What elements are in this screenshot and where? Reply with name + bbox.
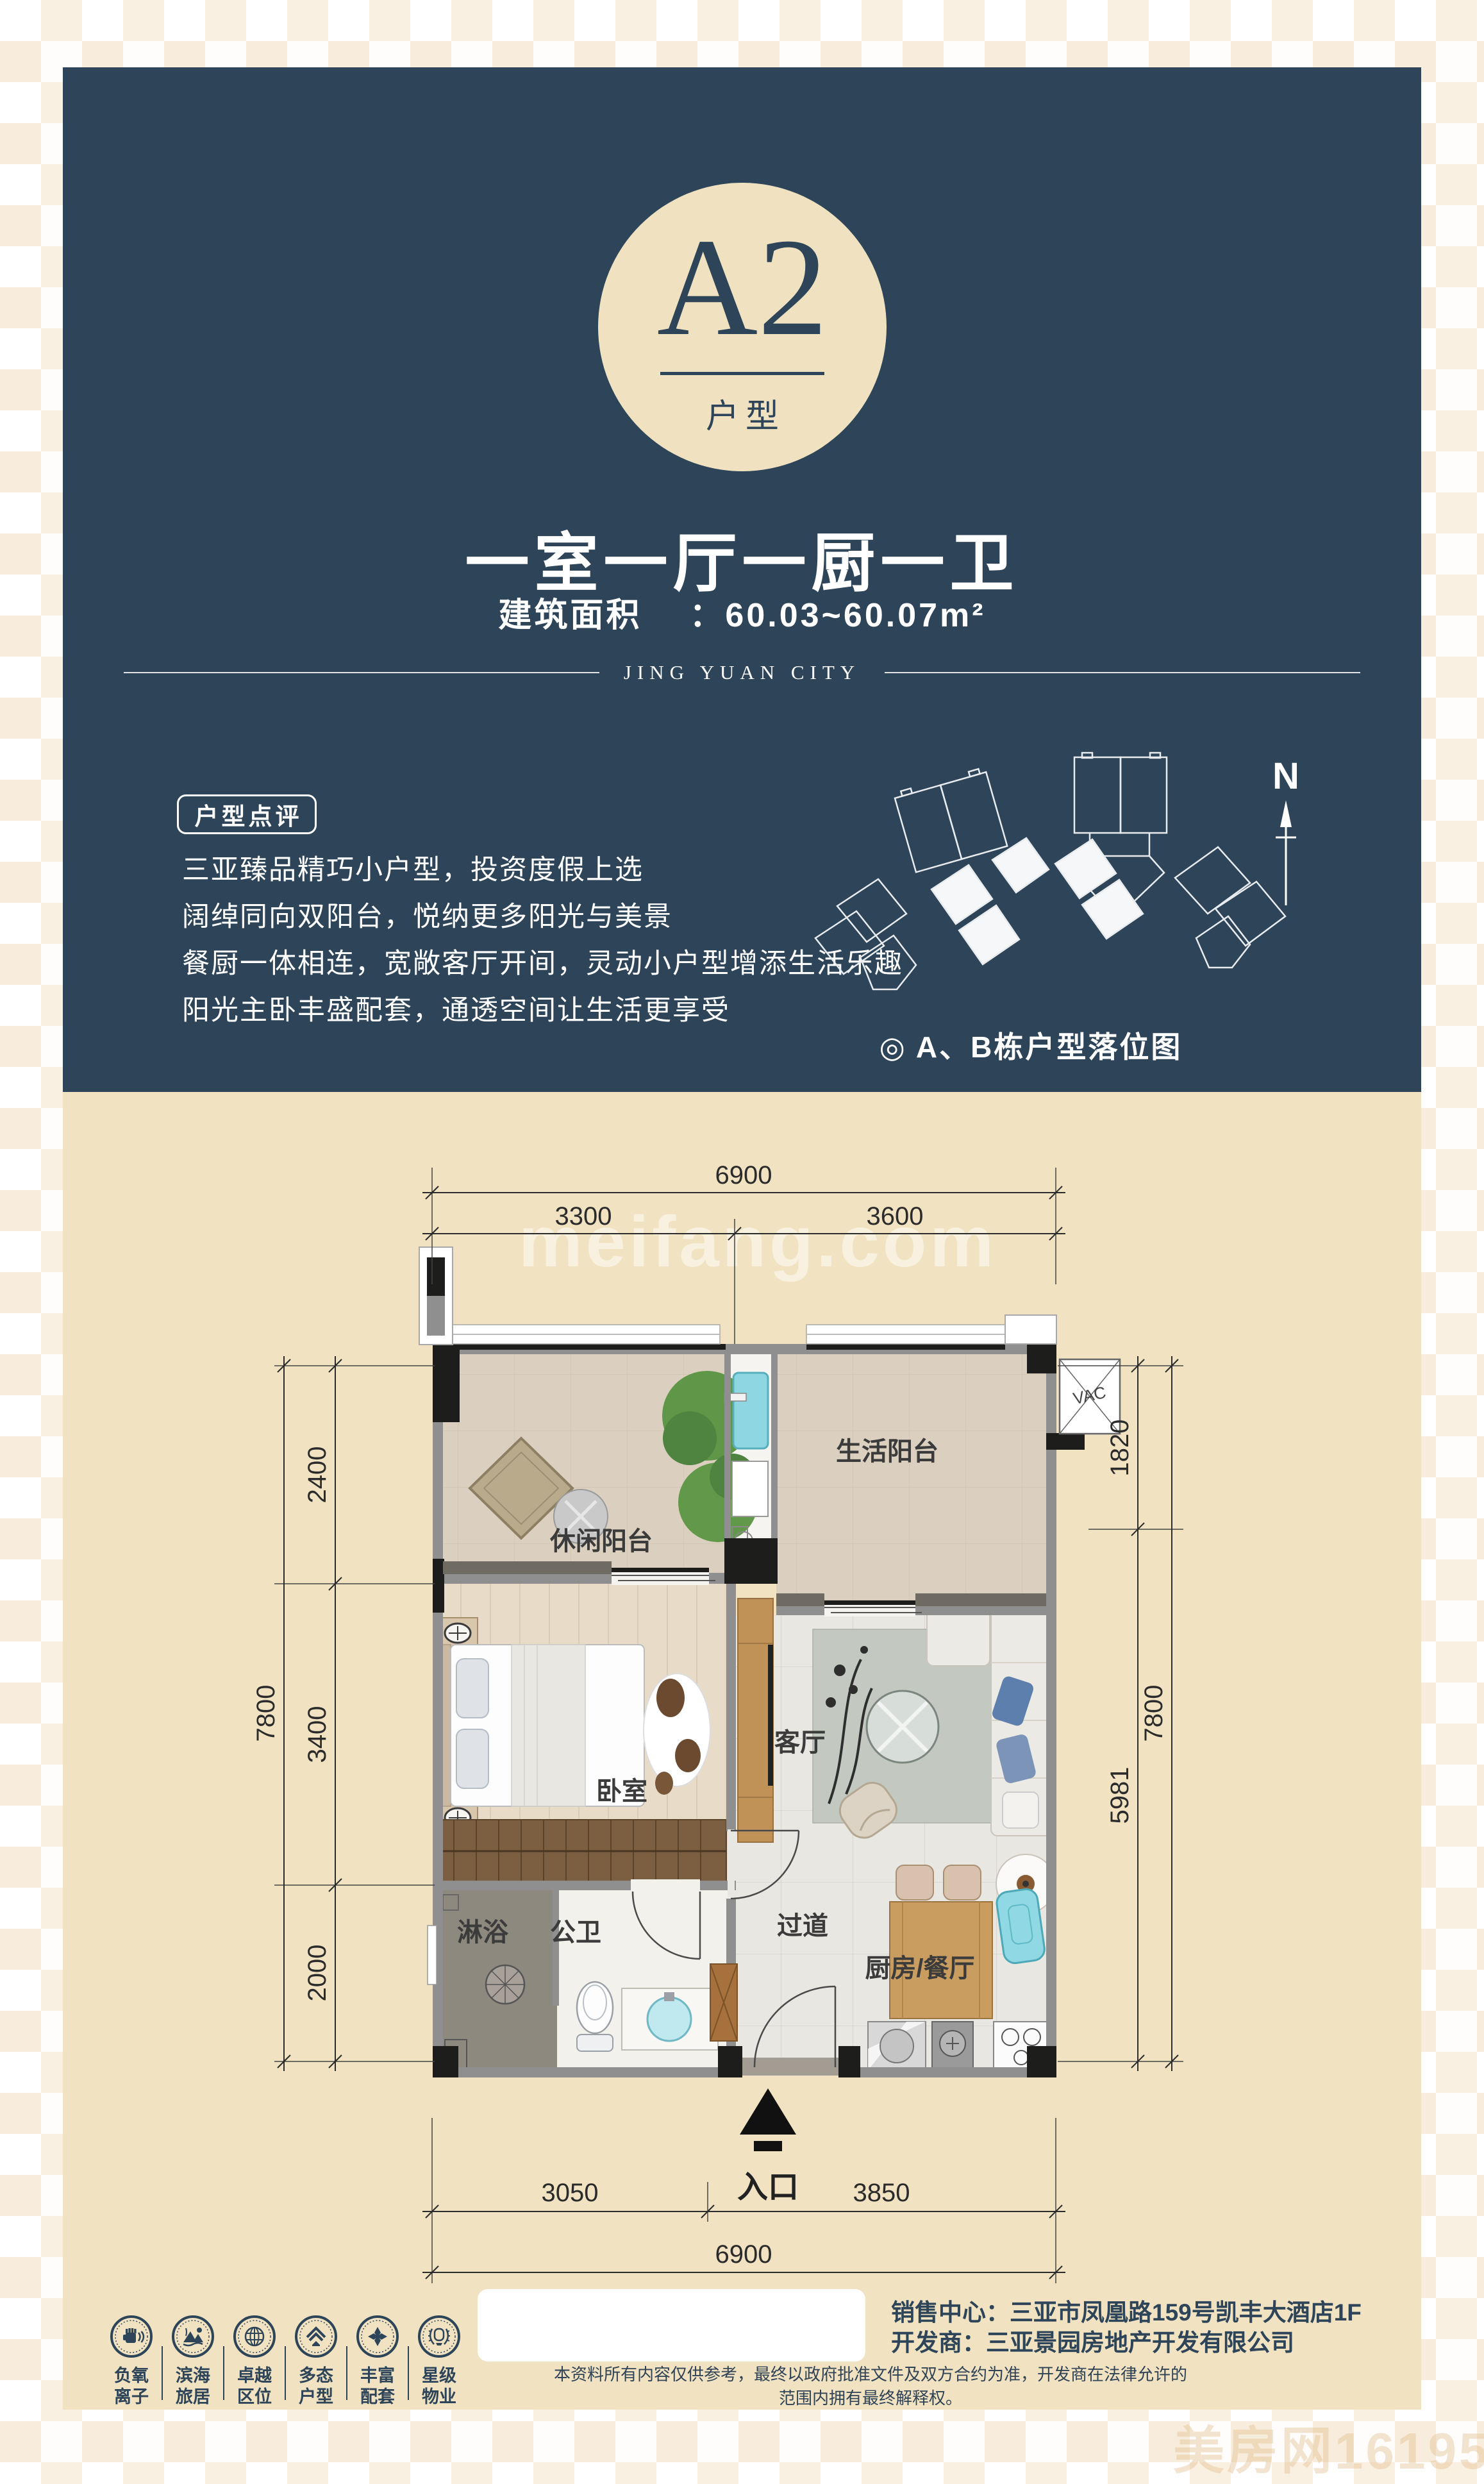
area-row: 建筑面积：60.03~60.07m² bbox=[63, 588, 1421, 636]
dim-left-seg3: 2000 bbox=[303, 1945, 331, 2002]
dim-top-total: 6900 bbox=[715, 1161, 772, 1189]
compass: N bbox=[1267, 755, 1305, 910]
room-label-leisure-balcony: 休闲阳台 bbox=[549, 1527, 653, 1556]
unit-code: A2 bbox=[657, 201, 828, 376]
badge-label: 负氧离子 bbox=[114, 2365, 149, 2408]
room-label-corridor: 过道 bbox=[777, 1912, 828, 1940]
dim-top-left: 3300 bbox=[555, 1202, 612, 1230]
comment-line: 三亚臻品精巧小户型，投资度假上选 bbox=[182, 847, 903, 894]
entrance-label: 入口 bbox=[737, 2170, 799, 2204]
dim-left-seg1: 2400 bbox=[303, 1447, 331, 1504]
dim-top-right: 3600 bbox=[867, 1202, 924, 1230]
brand-name: JING YUAN CITY bbox=[624, 661, 860, 684]
room-label-kitchen: 厨房/餐厅 bbox=[865, 1954, 974, 1983]
comment-list: 三亚臻品精巧小户型，投资度假上选 阔绰同向双阳台，悦纳更多阳光与美景 餐厨一体相… bbox=[182, 847, 903, 1034]
logo-placeholder bbox=[478, 2289, 865, 2362]
globe-icon bbox=[232, 2314, 277, 2359]
house-icon bbox=[294, 2314, 338, 2359]
disclaimer-text: 本资料所有内容仅供参考，最终以政府批准文件及双方合约为准，开发商在法律允许的范围… bbox=[550, 2362, 1191, 2409]
corner-watermark: 美房网161955035 bbox=[1173, 2410, 1484, 2484]
unit-code-label: 户型 bbox=[699, 389, 785, 437]
room-label-bath: 公卫 bbox=[550, 1918, 601, 1947]
badge-label: 卓越区位 bbox=[237, 2365, 272, 2408]
area-value: ：60.03~60.07m² bbox=[689, 588, 985, 636]
comment-box-label: 户型点评 bbox=[177, 794, 317, 834]
badge-divider bbox=[660, 372, 824, 375]
contact-info: 销售中心：三亚市凤凰路159号凯丰大酒店1F 开发商：三亚景园房地产开发有限公司 bbox=[891, 2297, 1362, 2358]
room-label-life-balcony: 生活阳台 bbox=[836, 1438, 938, 1466]
siteplan-diagram bbox=[800, 746, 1313, 1018]
badge-location: 卓越区位 bbox=[224, 2314, 285, 2408]
compass-arrow-icon bbox=[1274, 798, 1297, 910]
badge-coast: 滨海旅居 bbox=[163, 2314, 223, 2408]
area-label: 建筑面积 bbox=[498, 588, 642, 636]
coast-mountain-icon bbox=[171, 2314, 215, 2359]
room-label-bedroom: 卧室 bbox=[596, 1777, 647, 1806]
dim-right-total: 7800 bbox=[1140, 1685, 1168, 1742]
comment-line: 餐厨一体相连，宽敞客厅开间，灵动小户型增添生活乐趣 bbox=[182, 941, 903, 987]
badge-amenities: 丰富配套 bbox=[347, 2314, 408, 2408]
sales-center-line: 销售中心：三亚市凤凰路159号凯丰大酒店1F bbox=[891, 2297, 1362, 2328]
header-panel: A2 户型 一室一厅一厨一卫 建筑面积：60.03~60.07m² JING Y… bbox=[63, 67, 1421, 1092]
badge-oxygen: 负氧离子 bbox=[101, 2314, 162, 2408]
unit-badge: A2 户型 bbox=[598, 183, 887, 471]
developer-line: 开发商：三亚景园房地产开发有限公司 bbox=[891, 2328, 1362, 2358]
ornament-icon bbox=[355, 2314, 400, 2359]
dim-right-seg2: 5981 bbox=[1106, 1767, 1134, 1824]
floorplan-drawing: meifang.com bbox=[63, 1092, 1421, 2410]
dim-right-seg1: 1820 bbox=[1106, 1420, 1134, 1477]
entrance-marker: 入口 bbox=[737, 2088, 799, 2204]
fist-icon bbox=[109, 2314, 154, 2359]
dim-bottom-right: 3850 bbox=[853, 2179, 910, 2207]
feature-badges: 负氧离子 滨海旅居 bbox=[101, 2314, 469, 2408]
compass-n-label: N bbox=[1272, 755, 1299, 798]
dim-left-seg2: 3400 bbox=[303, 1706, 331, 1763]
badge-label: 星级物业 bbox=[422, 2365, 456, 2408]
badge-layouts: 多态户型 bbox=[286, 2314, 346, 2408]
brand-rule-right bbox=[885, 672, 1360, 673]
dim-bottom-total: 6900 bbox=[715, 2240, 772, 2269]
siteplan-caption: ◎ A、B栋户型落位图 bbox=[832, 1024, 1230, 1066]
room-label-living: 客厅 bbox=[774, 1729, 826, 1757]
badge-label: 多态户型 bbox=[299, 2365, 333, 2408]
laurel-icon bbox=[417, 2314, 462, 2359]
room-label-shower: 淋浴 bbox=[457, 1918, 509, 1947]
brand-rule-left bbox=[124, 672, 599, 673]
badge-label: 滨海旅居 bbox=[176, 2365, 210, 2408]
dim-left-total: 7800 bbox=[252, 1685, 280, 1742]
badge-property: 星级物业 bbox=[409, 2314, 469, 2408]
dim-bottom-left: 3050 bbox=[542, 2179, 599, 2207]
brand-row: JING YUAN CITY bbox=[124, 661, 1360, 684]
poster-page: { "header": { "unit_code": "A2", "unit_c… bbox=[0, 0, 1484, 2469]
floorplan-sheet: meifang.com bbox=[63, 1092, 1421, 2410]
poster: A2 户型 一室一厅一厨一卫 建筑面积：60.03~60.07m² JING Y… bbox=[63, 67, 1421, 2410]
comment-line: 阔绰同向双阳台，悦纳更多阳光与美景 bbox=[182, 894, 903, 941]
comment-line: 阳光主卧丰盛配套，通透空间让生活更享受 bbox=[182, 987, 903, 1034]
badge-label: 丰富配套 bbox=[360, 2365, 395, 2408]
